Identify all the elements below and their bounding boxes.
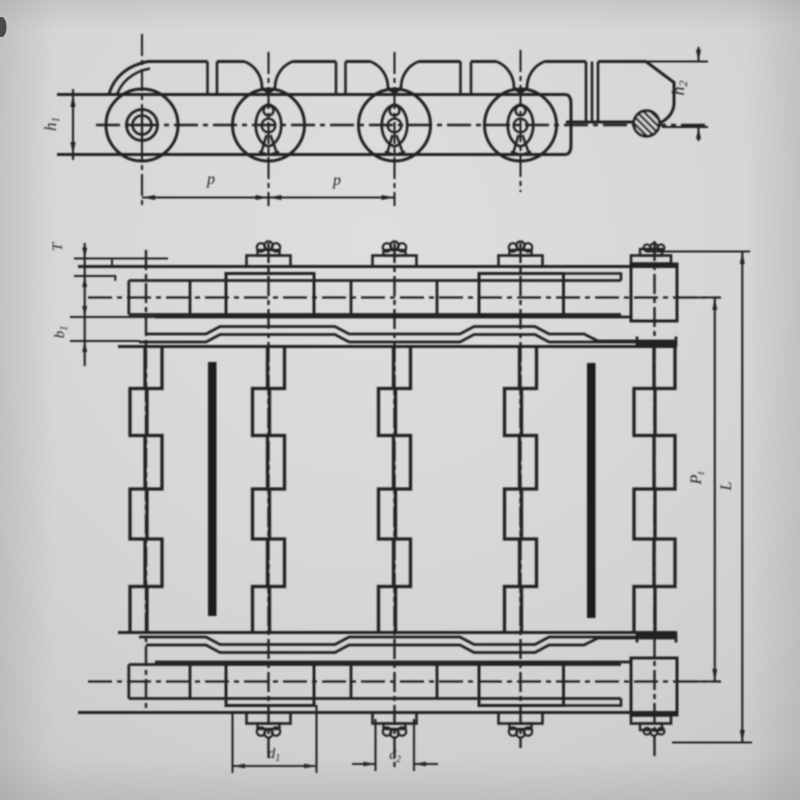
svg-text:L: L (718, 481, 735, 491)
svg-text:p: p (206, 171, 215, 188)
svg-text:p: p (332, 172, 341, 189)
